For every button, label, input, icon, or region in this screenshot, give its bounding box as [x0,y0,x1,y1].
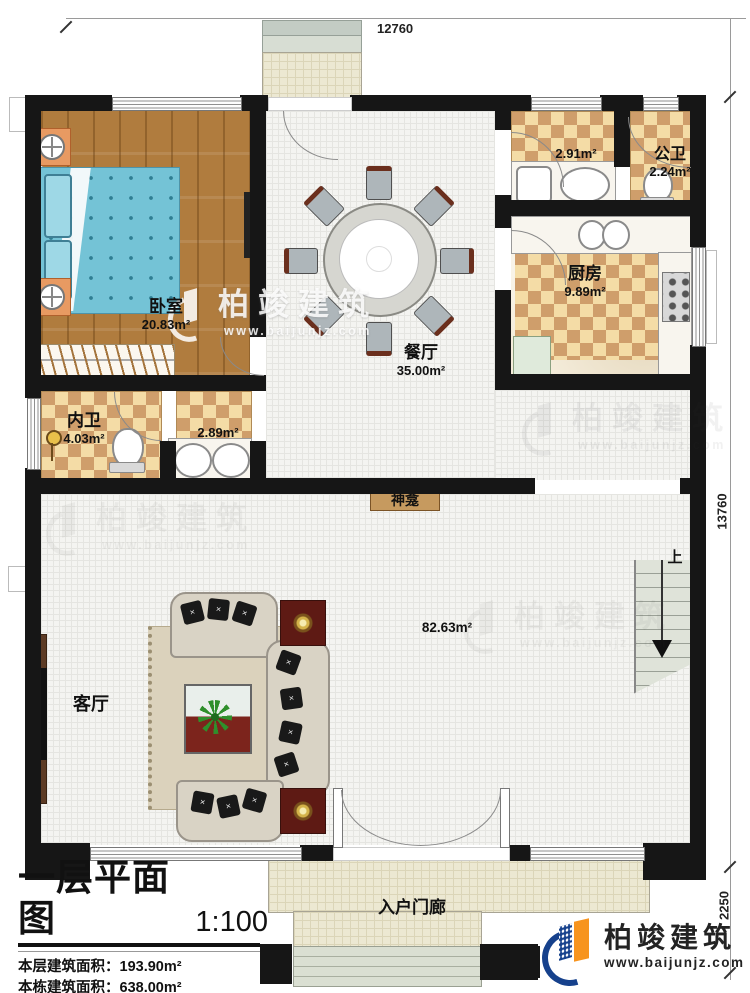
logo-building-blue [559,923,572,961]
title-underline-thin [18,951,260,952]
room-area: 9.89m² [535,284,635,300]
dimension-line-top [66,18,746,19]
wall [300,845,333,861]
room-name: 内卫 [34,411,134,431]
stat-label: 本栋建筑面积： [18,980,120,993]
window [692,247,706,347]
window [643,97,679,111]
doorway-threshold [268,97,352,111]
laundry-sink [560,167,610,203]
stairs-up-label: 上 [664,546,686,567]
stat-row: 本层建筑面积：193.90m² [18,957,268,978]
wall [495,111,511,130]
room-name: 卧室 [106,297,226,317]
sofa-cushion: × [216,794,241,819]
stamp-block [518,946,540,978]
vanity-sink [174,443,212,478]
entry-door-threshold [333,847,510,861]
wall [25,375,266,391]
brand-logo-icon [542,918,598,982]
room-area: 35.00m² [361,363,481,379]
bedroom-label: 卧室 20.83m² [106,297,226,332]
private-bath-toilet-base [109,462,145,473]
floor-plan: 12760 13760 2250 [0,0,750,993]
brand-website: www.baijunjz.com [604,956,745,970]
dining-label: 餐厅 35.00m² [361,343,481,378]
public-bath-label: 公卫 2.24m² [630,140,710,180]
room-area: 2.24m² [630,164,710,180]
dining-chair [366,166,392,200]
kitchen-label: 厨房 9.89m² [535,264,635,299]
wall [350,95,531,111]
laundry-area-label: 2.91m² [536,146,616,162]
dimension-line-right [730,18,731,980]
pillow [44,174,72,238]
dining-table-center [366,246,392,272]
dining-chair [440,248,474,274]
living-label: 客厅 [51,690,131,716]
logo-building-orange [574,918,589,961]
vanity-sink [212,443,250,478]
brand-logo: 柏竣建筑 www.baijunjz.com [542,916,742,986]
room-area: 4.03m² [34,431,134,447]
room-name: 餐厅 [361,343,481,363]
table-lamp [293,613,313,633]
title-block: 一层平面图 1:100 本层建筑面积：193.90m² 本栋建筑面积：638.0… [18,858,268,993]
wall [495,216,511,228]
sofa-cushion: × [207,598,230,621]
wall [495,374,706,390]
wall [25,468,41,861]
stat-value: 638.00m² [120,980,182,993]
title-underline [18,943,260,947]
stat-label: 本层建筑面积： [18,959,120,975]
wall [240,95,268,111]
wall [690,345,706,861]
wall [508,845,530,861]
private-bath-label: 内卫 4.03m² [34,411,134,446]
top-porch-floor [262,52,362,99]
dimension-top: 12760 [377,21,413,36]
kitchen-sink [602,220,630,250]
vanity-area-label: 2.89m² [178,425,258,441]
wall [495,200,706,216]
side-table [280,600,326,646]
plan-scale: 1:100 [195,906,268,939]
dimension-right: 13760 [715,482,730,542]
window [531,97,602,111]
sofa-cushion: × [280,687,304,711]
stat-value: 193.90m² [120,959,182,975]
window [530,847,645,861]
wall [680,478,706,494]
stair-arrow [652,640,672,658]
hallway-floor [495,390,690,480]
brand-company: 柏竣建筑 [604,924,745,952]
refrigerator [513,336,551,375]
kitchen-stove [662,272,690,322]
room-name: 厨房 [535,264,635,284]
porch-label: 入户门廊 [357,893,467,918]
dimension-tick [60,21,73,34]
dining-chair [284,248,318,274]
window [112,97,242,111]
wall [160,441,176,480]
wall [25,478,535,494]
wall [600,95,643,111]
table-lamp [293,801,313,821]
wall-corner [643,843,706,880]
potted-plant [198,700,232,734]
sofa-cushion: × [190,790,214,814]
wardrobe [33,344,175,376]
sofa-cushion: × [278,720,303,745]
entry-steps [293,946,482,987]
room-area: 20.83m² [106,317,226,333]
tv [41,668,47,760]
window-sill [706,250,717,344]
wall [25,95,41,398]
room-name: 公卫 [630,140,710,164]
wall [250,111,266,337]
entry-door-leaf [500,788,510,848]
stat-row: 本栋建筑面积：638.00m² [18,978,268,993]
side-table [280,788,326,834]
wall [250,441,266,480]
stair-direction-line [661,560,663,640]
living-area-label: 82.63m² [407,620,487,636]
plan-title: 一层平面图 [18,858,181,939]
